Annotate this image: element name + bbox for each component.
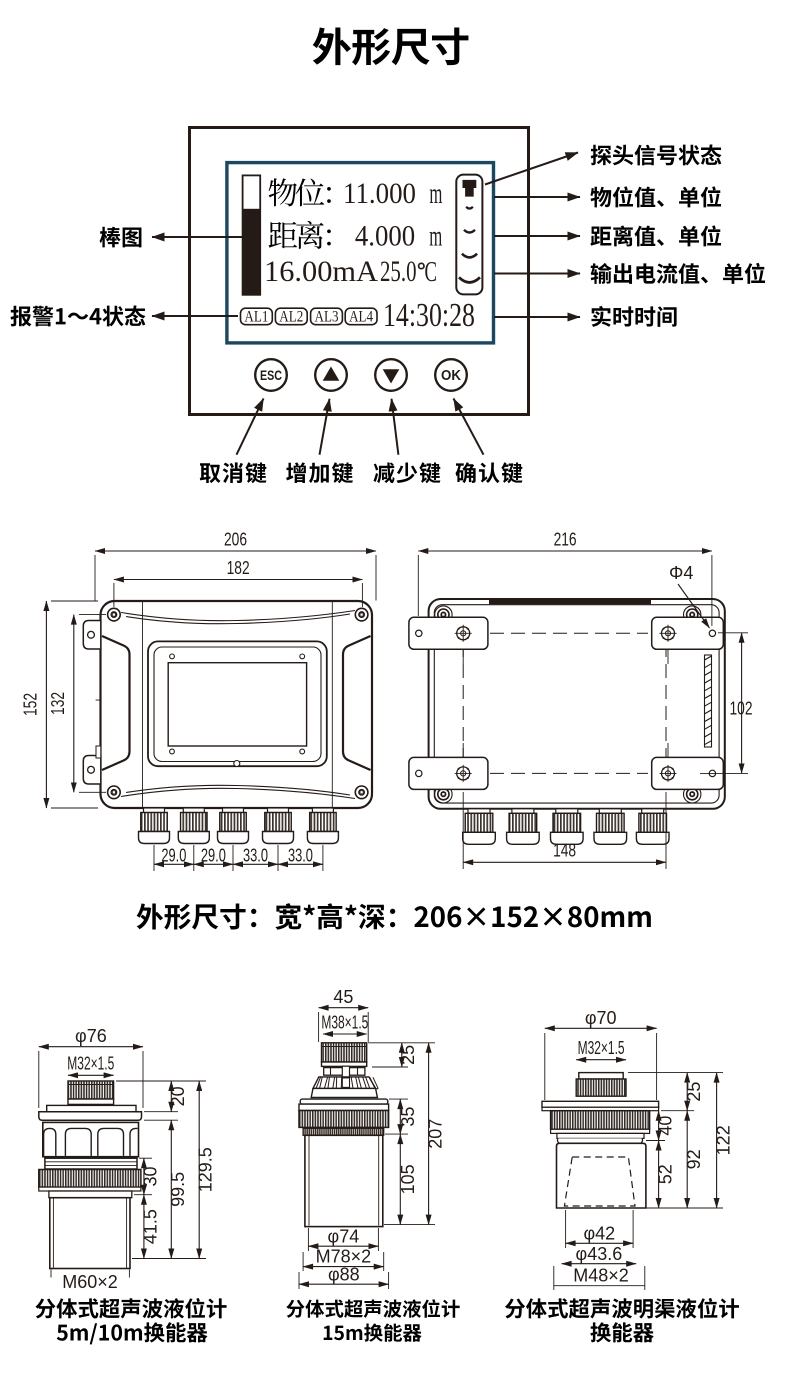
svg-text:11.000: 11.000 <box>343 177 416 210</box>
svg-text:40: 40 <box>656 1116 676 1136</box>
svg-text:33.0: 33.0 <box>288 846 313 866</box>
svg-text:OK: OK <box>441 368 461 384</box>
svg-text:20: 20 <box>168 1086 188 1106</box>
svg-text:M32×1.5: M32×1.5 <box>67 1054 114 1074</box>
svg-text:ESC: ESC <box>260 368 282 383</box>
svg-text:148: 148 <box>553 841 576 861</box>
svg-text:φ42: φ42 <box>583 1224 615 1244</box>
svg-text:φ76: φ76 <box>75 1026 107 1046</box>
svg-text:29.0: 29.0 <box>161 846 186 866</box>
svg-text:AL3: AL3 <box>315 309 339 326</box>
svg-text:129.5: 129.5 <box>196 1147 216 1192</box>
svg-text:φ43.6: φ43.6 <box>576 1244 623 1264</box>
svg-text:AL2: AL2 <box>279 309 303 326</box>
svg-text:152: 152 <box>21 693 41 716</box>
svg-text:m: m <box>429 177 442 210</box>
svg-text:25: 25 <box>398 1045 418 1065</box>
svg-text:29.0: 29.0 <box>201 846 226 866</box>
svg-text:52: 52 <box>656 1164 676 1184</box>
svg-text:132: 132 <box>48 692 68 715</box>
svg-text:182: 182 <box>227 558 250 578</box>
svg-text:4.000: 4.000 <box>355 220 415 253</box>
svg-text:φ70: φ70 <box>585 1008 617 1028</box>
svg-text:AL1: AL1 <box>244 309 268 326</box>
svg-text:33.0: 33.0 <box>243 846 268 866</box>
svg-text:M48×2: M48×2 <box>573 1266 629 1286</box>
svg-text:45: 45 <box>333 987 353 1007</box>
svg-text:M60×2: M60×2 <box>62 1272 118 1292</box>
svg-text:41.5: 41.5 <box>141 1209 161 1244</box>
svg-text:φ74: φ74 <box>328 1227 360 1247</box>
svg-text:122: 122 <box>714 1125 734 1155</box>
svg-text:92: 92 <box>684 1149 704 1169</box>
svg-text:M32×1.5: M32×1.5 <box>578 1038 625 1058</box>
svg-text:206: 206 <box>224 530 247 550</box>
svg-text:102: 102 <box>730 699 753 719</box>
svg-text:35: 35 <box>398 1107 418 1127</box>
svg-text:C: C <box>425 256 438 288</box>
svg-text:M78×2: M78×2 <box>316 1247 372 1267</box>
svg-text:99.5: 99.5 <box>168 1172 188 1207</box>
svg-text:16.00mA: 16.00mA <box>264 255 378 288</box>
svg-text:207: 207 <box>426 1119 446 1149</box>
svg-text:216: 216 <box>554 530 577 550</box>
svg-text:m: m <box>429 220 442 253</box>
svg-text:30: 30 <box>141 1166 161 1186</box>
svg-text:105: 105 <box>398 1164 418 1194</box>
svg-text:Φ4: Φ4 <box>669 563 693 583</box>
svg-text:φ88: φ88 <box>328 1265 360 1285</box>
svg-text:25.0: 25.0 <box>380 255 417 288</box>
svg-text:M38×1.5: M38×1.5 <box>321 1013 368 1033</box>
svg-text:25: 25 <box>684 1082 704 1102</box>
svg-text:AL4: AL4 <box>349 309 373 326</box>
svg-text:14:30:28: 14:30:28 <box>383 297 475 334</box>
